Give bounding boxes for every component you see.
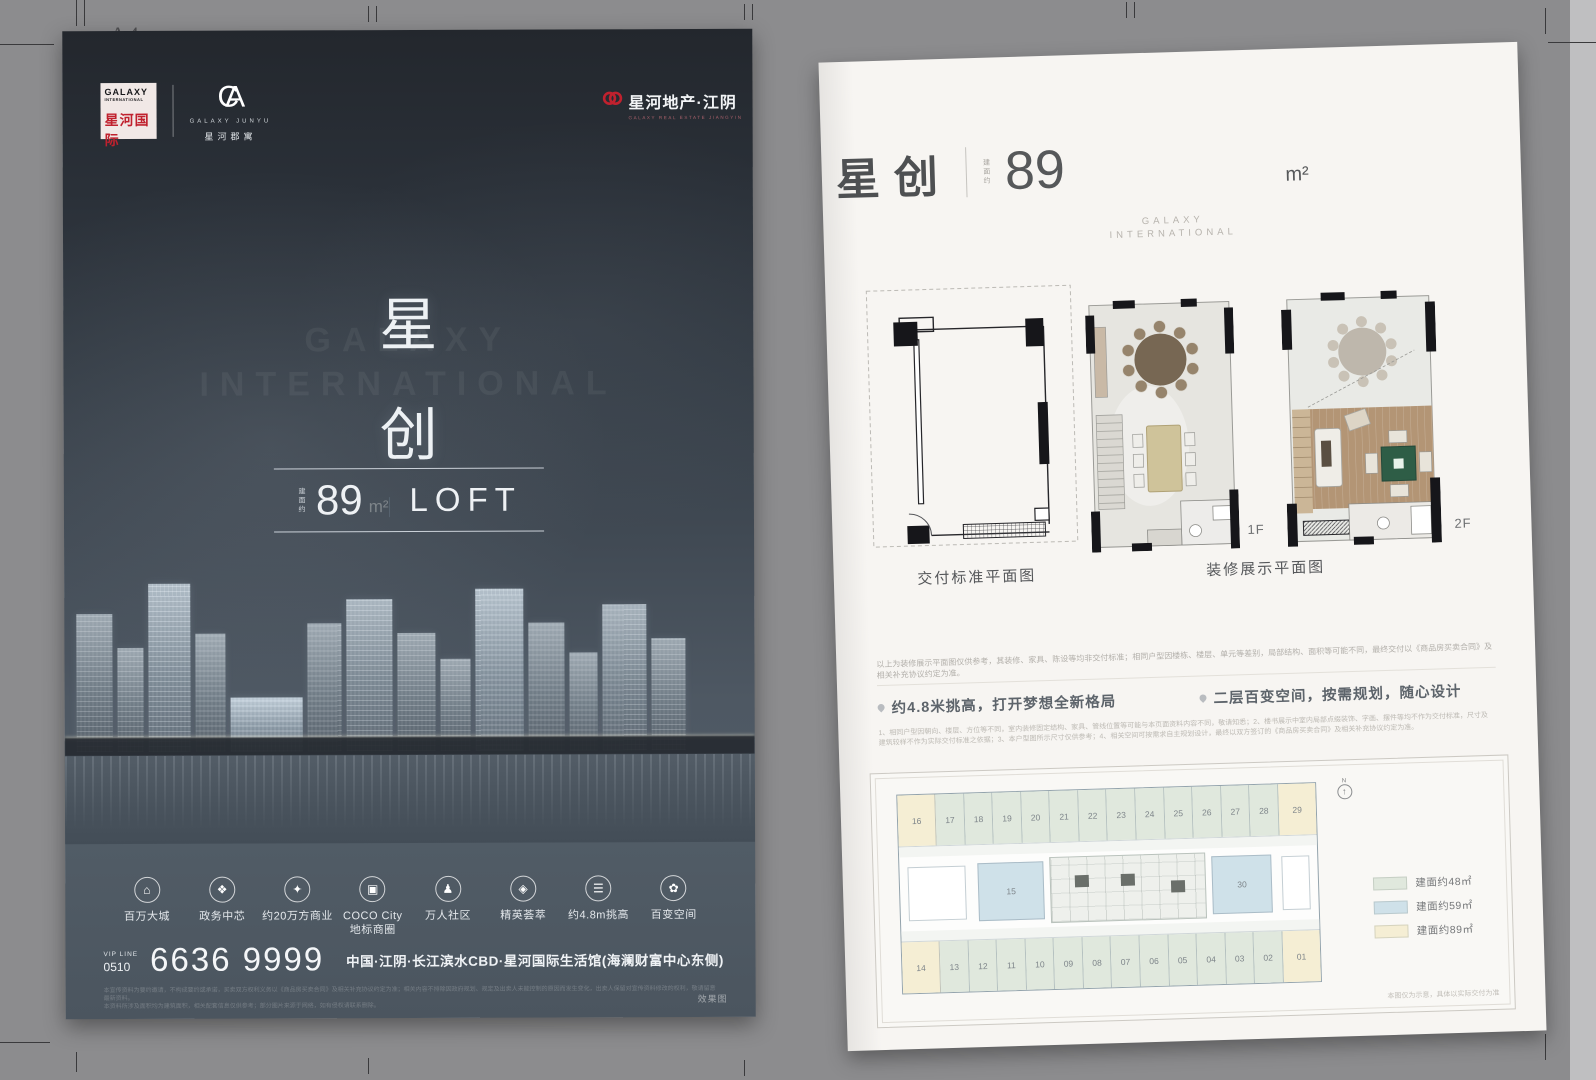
legend-item: 建面约59㎡ — [1374, 898, 1473, 916]
logo-text: GALAXY — [104, 87, 152, 97]
disclaimer-line: 本资料所涉及面积均为建筑面积，相关配套信息仅供参考；部分图片来源于网络，如有侵权… — [104, 1001, 718, 1011]
north-arrow-icon: N ↑ — [1335, 777, 1354, 802]
crop-mark — [744, 1060, 745, 1076]
floor-tag-1f: 1F — [1247, 522, 1265, 538]
amenity-item: ☰约4.8m挑高 — [561, 875, 636, 936]
crop-mark — [84, 0, 85, 26]
unit-cell: 03 — [1225, 932, 1255, 984]
logo-text: INTERNATIONAL — [105, 97, 153, 102]
plate-core-band: 15 30 — [899, 845, 1319, 931]
amenity-label: 百万大城 — [124, 910, 170, 924]
unit-cell: 18 — [964, 793, 994, 845]
plate-bottom-row: 1413121110090807060504030201 — [902, 929, 1321, 993]
quote-bullet-icon — [876, 703, 886, 713]
unit-cell: 07 — [1111, 935, 1141, 987]
amenity-item: ▣COCO City 地标商圈 — [335, 876, 410, 937]
unit-cell: 06 — [1140, 935, 1170, 987]
crop-mark — [1548, 42, 1596, 43]
floor-plate-diagram: 1617181920212223242526272829 15 30 14131… — [896, 782, 1322, 994]
crop-mark — [368, 6, 369, 22]
ceiling-height-icon: ☰ — [585, 875, 611, 901]
unit-cell: 27 — [1221, 785, 1251, 837]
amenity-item: ✦约20万方商业 — [260, 876, 335, 937]
crop-mark — [1545, 1034, 1546, 1060]
unit-cell: 23 — [1107, 789, 1137, 841]
floor-tag-2f: 2F — [1454, 515, 1472, 531]
unit-cell: 29 — [1278, 783, 1317, 835]
galaxy-international-logo: GALAXY INTERNATIONAL 星河国际 — [100, 83, 156, 139]
legend-swatch — [1374, 900, 1408, 914]
junyu-en: GALAXY JUNYU — [190, 118, 272, 124]
unit-cell: 13 — [940, 941, 970, 993]
city-skyline-render — [64, 574, 755, 844]
legend-label: 建面约59㎡ — [1416, 898, 1473, 915]
plate-legend: 建面约48㎡建面约59㎡建面约89㎡ — [1373, 874, 1474, 940]
area-number: 89 — [316, 476, 363, 524]
poster-title: 星 创 — [63, 277, 754, 473]
unit-cell: 16 — [897, 794, 937, 846]
amenity-label: 约4.8m挑高 — [568, 908, 629, 922]
hotline: VIP LINE 0510 6636 9999 中国·江阴·长江滨水CBD·星河… — [103, 941, 723, 976]
unit-cell: 10 — [1025, 938, 1055, 990]
developer-name-en: GALAXY REAL ESTATE JIANGYIN — [629, 115, 743, 120]
delivery-plan-caption: 交付标准平面图 — [873, 563, 1082, 590]
legend-label: 建面约48㎡ — [1415, 874, 1472, 891]
amenity-label: 约20万方商业 — [262, 909, 333, 923]
feature-text: 约4.8米挑高，打开梦想全新格局 — [891, 690, 1116, 718]
quote-bullet-icon — [1198, 693, 1208, 703]
unit-cell: 11 — [997, 939, 1027, 991]
city-icon: ⌂ — [134, 877, 160, 903]
unit-cell: 21 — [1050, 790, 1080, 842]
legend-item: 建面约48㎡ — [1373, 874, 1472, 892]
amenity-item: ◈精英荟萃 — [485, 875, 560, 936]
render-tag: 效果图 — [698, 992, 728, 1005]
amenity-item: ⌂百万大城 — [109, 877, 184, 938]
legend-swatch — [1373, 876, 1407, 890]
legend-swatch — [1375, 924, 1409, 938]
crop-mark — [368, 1058, 369, 1074]
amenity-item: ♟万人社区 — [410, 876, 485, 937]
amenity-label: 百变空间 — [651, 908, 697, 922]
poster-disclaimer: 本宣传资料为要约邀请，不构成要约或承诺，买卖双方权利义务以《商品房买卖合同》及相… — [104, 985, 718, 1011]
crop-mark — [1134, 2, 1135, 18]
buildings — [64, 575, 755, 752]
area-prefix: 建面约 — [296, 487, 306, 514]
unit-cell: 09 — [1054, 937, 1084, 989]
galaxy-swirl-icon — [601, 89, 623, 107]
amenity-item: ✿百变空间 — [636, 875, 711, 936]
unit-cell: 28 — [1249, 784, 1279, 836]
unit-cell: 17 — [935, 794, 965, 846]
unit-cell: 05 — [1168, 934, 1198, 986]
developer-name: 星河地产·江阴 — [628, 89, 742, 113]
unit-cell: 04 — [1197, 933, 1227, 985]
crop-mark — [752, 4, 753, 20]
feature-item: 二层百变空间，按需规划，随心设计 — [1199, 680, 1462, 709]
decorated-floor-plan-2f — [1280, 287, 1441, 546]
ca-monogram-icon: CA — [217, 83, 243, 113]
loft-label: LOFT — [409, 481, 521, 519]
logo-divider — [172, 85, 173, 137]
hotline-area-code: 0510 — [104, 962, 139, 972]
title-char: 星 — [379, 278, 437, 362]
elevator-core — [1049, 852, 1207, 923]
legend-item: 建面约89㎡ — [1375, 922, 1474, 940]
floor-plate-inner: 1617181920212223242526272829 15 30 14131… — [875, 760, 1511, 1024]
amenity-row: ⌂百万大城❖政务中芯✦约20万方商业▣COCO City 地标商圈♟万人社区◈精… — [65, 875, 755, 938]
sheet-area-number: 89 — [1004, 142, 1066, 198]
floorplan-page: 星创 建面约 89 m² GALAXY INTERNATIONAL — [818, 42, 1546, 1051]
crop-mark — [76, 0, 77, 26]
brochure-photo: { "photo": { "sheet_label": "A4" }, "pos… — [0, 0, 1596, 1080]
elite-icon: ◈ — [510, 876, 536, 902]
feature-item: 约4.8米挑高，打开梦想全新格局 — [877, 690, 1116, 718]
unit-cell: 30 — [1211, 855, 1273, 915]
community-icon: ♟ — [435, 876, 461, 902]
crop-mark — [0, 44, 54, 45]
legend-label: 建面约89㎡ — [1417, 922, 1474, 939]
sheet-title: 星创 建面约 89 m² — [821, 124, 1522, 209]
unit-cell: 15 — [977, 861, 1045, 921]
poster-logo-group: GALAXY INTERNATIONAL 星河国际 CA GALAXY JUNY… — [100, 82, 271, 143]
unit-cell: 08 — [1082, 936, 1112, 988]
tree-band — [65, 736, 755, 756]
unit-cell: 20 — [1021, 791, 1051, 843]
crop-mark — [744, 4, 745, 20]
unit-cell: 22 — [1078, 789, 1108, 841]
unit-cell: 24 — [1135, 788, 1165, 840]
junyu-logo: CA GALAXY JUNYU 星河郡寓 — [189, 82, 271, 142]
floor-plate-frame: 1617181920212223242526272829 15 30 14131… — [870, 754, 1516, 1028]
hotline-number: 6636 9999 — [150, 942, 324, 976]
title-char: 创 — [380, 388, 438, 472]
unit-cell: 25 — [1164, 787, 1194, 839]
sheet-area-prefix: 建面约 — [980, 158, 991, 185]
river-reflection — [65, 754, 755, 844]
area-unit: m² — [369, 497, 390, 517]
unit-cell: 19 — [993, 792, 1023, 844]
address: 中国·江阴·长江滨水CBD·星河国际生活馆(海澜财富中心东侧) — [346, 949, 724, 975]
crop-mark — [1545, 8, 1546, 34]
junyu-cn: 星河郡寓 — [204, 130, 256, 143]
government-icon: ❖ — [209, 877, 235, 903]
unit-cell: 26 — [1192, 786, 1222, 838]
crop-mark — [376, 6, 377, 22]
unit-cell: 14 — [902, 941, 942, 993]
fine-print: 1、相同户型因朝向、楼层、方位等不同，室内装修固定结构、家具、管线位置等可能与本… — [878, 711, 1497, 749]
amenity-item: ❖政务中芯 — [184, 877, 259, 938]
delivery-floor-plan — [864, 283, 1080, 549]
decorated-floor-plan-1f — [1085, 293, 1240, 552]
shopping-icon: ✦ — [284, 876, 310, 902]
flexible-space-icon: ✿ — [661, 875, 687, 901]
hotline-label: VIP LINE — [103, 950, 138, 960]
amenity-label: 精英荟萃 — [500, 909, 546, 923]
logo-text-cn: 星河国际 — [105, 110, 153, 150]
area-badge: 建面约 89 m² LOFT — [274, 468, 544, 533]
photo-edge-strip — [1570, 0, 1596, 1080]
crop-mark — [0, 1042, 50, 1043]
unit-cell: 02 — [1254, 931, 1284, 983]
feature-text: 二层百变空间，按需规划，随心设计 — [1213, 680, 1462, 708]
developer-logo: 星河地产·江阴 GALAXY REAL ESTATE JIANGYIN — [601, 89, 742, 120]
landmark-icon: ▣ — [360, 876, 386, 902]
amenity-label: COCO City 地标商圈 — [343, 909, 403, 937]
title-divider — [965, 147, 967, 197]
amenity-label: 万人社区 — [425, 909, 471, 923]
sheet-title-cn: 星创 — [821, 141, 953, 209]
unit-cell: 12 — [968, 940, 998, 992]
sheet-brand: GALAXY INTERNATIONAL — [823, 204, 1522, 251]
crop-mark — [76, 1052, 77, 1072]
plate-note: 本图仅为示意，具体以实际交付为准 — [1387, 988, 1499, 1001]
poster-page: GALAXY INTERNATIONAL 星河国际 CA GALAXY JUNY… — [62, 29, 755, 1019]
crop-mark — [1126, 2, 1127, 18]
unit-cell: 01 — [1282, 930, 1321, 982]
amenity-label: 政务中芯 — [199, 910, 245, 924]
sheet-area-unit: m² — [1073, 157, 1521, 193]
decorated-plan-caption: 装修展示平面图 — [1165, 555, 1366, 582]
